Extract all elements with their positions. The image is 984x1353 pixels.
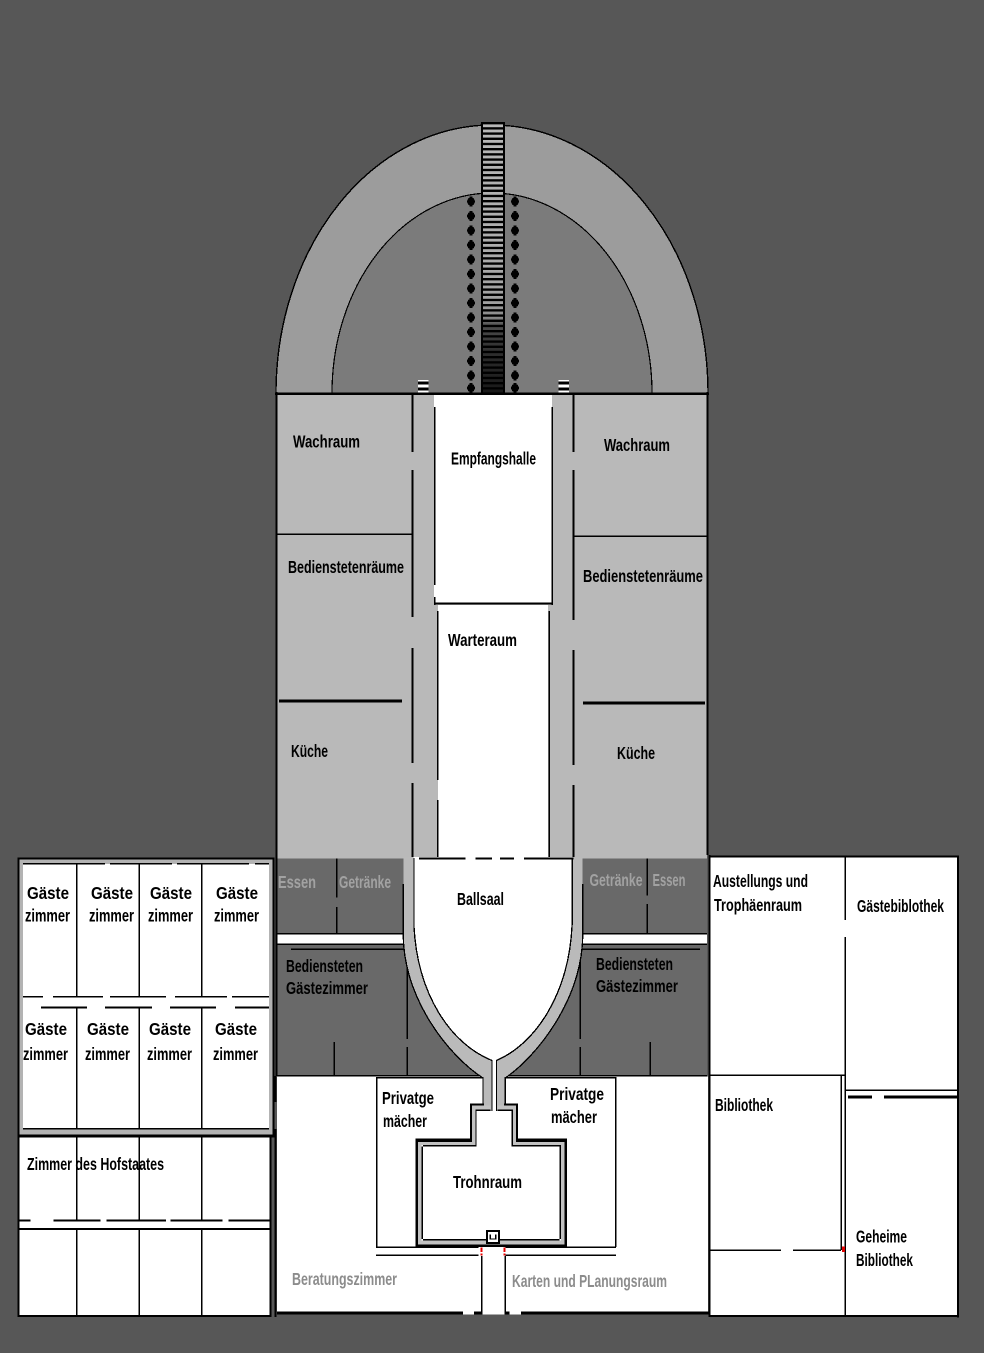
svg-text:Essen: Essen: [653, 870, 686, 890]
svg-text:Empfangshalle: Empfangshalle: [451, 449, 536, 469]
svg-text:Gästezimmer: Gästezimmer: [596, 976, 678, 996]
svg-text:Ballsaal: Ballsaal: [457, 889, 504, 909]
svg-text:Wachraum: Wachraum: [604, 435, 670, 455]
svg-text:zimmer: zimmer: [214, 906, 259, 926]
svg-text:Bediensteten: Bediensteten: [596, 954, 673, 974]
svg-text:Trohnraum: Trohnraum: [453, 1172, 522, 1192]
svg-text:Getränke: Getränke: [339, 872, 391, 892]
svg-text:Gäste: Gäste: [150, 883, 192, 903]
svg-text:Bedienstetenräume: Bedienstetenräume: [288, 557, 404, 577]
svg-text:zimmer: zimmer: [148, 906, 193, 926]
svg-text:Gäste: Gäste: [91, 883, 133, 903]
svg-text:zimmer: zimmer: [89, 906, 134, 926]
svg-text:Küche: Küche: [617, 743, 655, 763]
svg-text:zimmer: zimmer: [213, 1044, 258, 1064]
svg-text:Getränke: Getränke: [590, 870, 643, 890]
svg-text:zimmer: zimmer: [23, 1044, 68, 1064]
svg-text:Bibliothek: Bibliothek: [856, 1250, 913, 1270]
svg-text:Warteraum: Warteraum: [448, 630, 517, 650]
svg-text:Gäste: Gäste: [87, 1019, 129, 1039]
svg-text:Küche: Küche: [291, 741, 328, 761]
svg-text:zimmer: zimmer: [25, 906, 70, 926]
svg-text:zimmer: zimmer: [85, 1044, 130, 1064]
svg-text:Karten und PLanungsraum: Karten und PLanungsraum: [512, 1271, 667, 1291]
svg-text:Geheime: Geheime: [856, 1227, 907, 1247]
svg-text:Privatge: Privatge: [382, 1088, 434, 1108]
svg-text:mächer: mächer: [551, 1107, 597, 1127]
svg-text:Bibliothek: Bibliothek: [715, 1095, 773, 1115]
svg-text:Gäste: Gäste: [27, 883, 69, 903]
svg-text:Bedienstetenräume: Bedienstetenräume: [583, 566, 703, 586]
svg-text:Gästebiblothek: Gästebiblothek: [857, 896, 944, 916]
svg-text:Essen: Essen: [278, 872, 316, 892]
svg-text:Trophäenraum: Trophäenraum: [714, 895, 802, 915]
svg-text:Austellungs und: Austellungs und: [713, 871, 808, 891]
svg-text:Gäste: Gäste: [25, 1019, 67, 1039]
svg-text:Gästezimmer: Gästezimmer: [286, 978, 368, 998]
svg-text:Beratungszimmer: Beratungszimmer: [292, 1269, 397, 1289]
svg-text:Bediensteten: Bediensteten: [286, 956, 363, 976]
svg-text:Wachraum: Wachraum: [293, 432, 360, 452]
svg-text:Gäste: Gäste: [215, 1019, 257, 1039]
svg-text:Zimmer des Hofstaates: Zimmer des Hofstaates: [27, 1154, 164, 1174]
svg-text:Gäste: Gäste: [216, 883, 258, 903]
svg-text:mächer: mächer: [383, 1111, 427, 1131]
svg-text:Privatge: Privatge: [550, 1084, 604, 1104]
svg-text:zimmer: zimmer: [147, 1044, 192, 1064]
svg-text:Gäste: Gäste: [149, 1019, 191, 1039]
